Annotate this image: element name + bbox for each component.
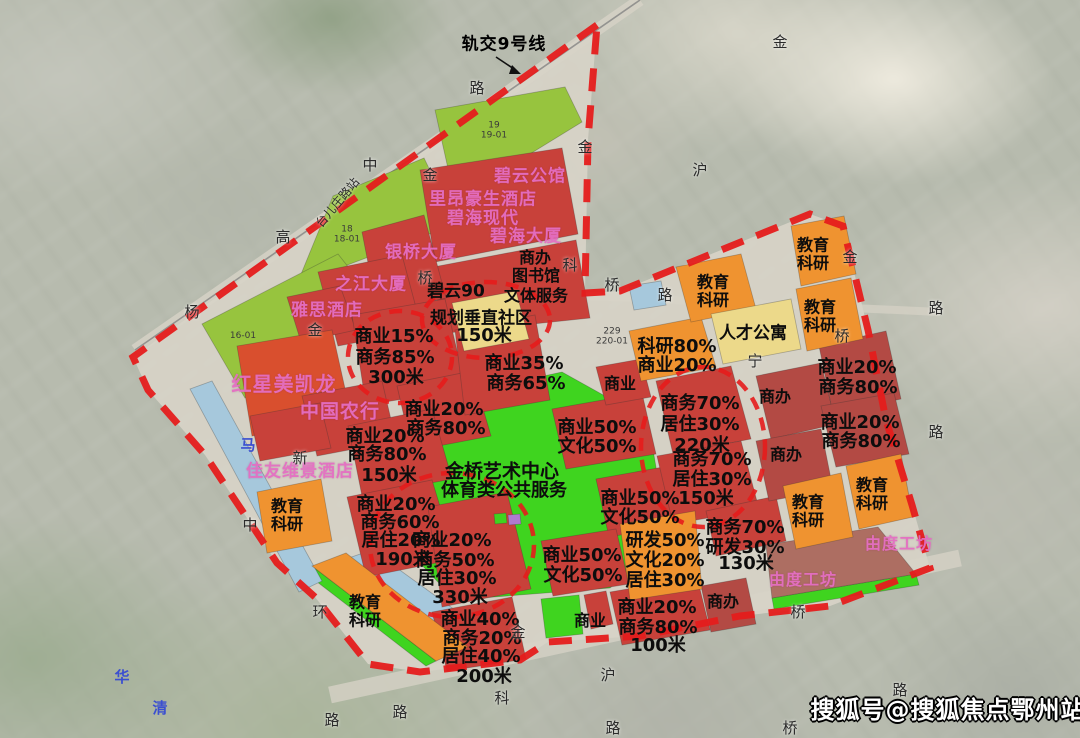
road-name-label: 路	[657, 287, 672, 304]
zoning-label: 商务70%	[672, 450, 751, 470]
road-name-label: 华	[114, 669, 129, 686]
parcel-code-label: 18 18-01	[334, 225, 360, 246]
zoning-label: 居住40%	[441, 647, 520, 667]
zoning-label: 文化50%	[600, 508, 679, 528]
zoning-label: 规划垂直社区	[430, 310, 532, 329]
zoning-label: 商业	[604, 375, 636, 393]
zoning-label: 文化20%	[625, 551, 704, 571]
zoning-label: 商务80%	[818, 378, 897, 398]
road-name-label: 路	[892, 682, 907, 699]
road-name-label: 台儿庄路站	[314, 176, 363, 230]
road-name-label: 高	[275, 229, 290, 246]
zoning-label: 商办	[519, 249, 551, 267]
zoning-label: 商办	[759, 388, 791, 406]
zoning-label: 商务70%	[705, 518, 784, 538]
road-name-label: 桥	[834, 328, 849, 345]
road-name-label: 杨	[184, 304, 199, 321]
zoning-label: 人才公寓	[719, 325, 787, 344]
road-name-label: 科	[494, 690, 509, 707]
zoning-label: 教育 科研	[856, 476, 888, 511]
zoning-label: 图书馆	[512, 267, 560, 285]
zoning-label: 商务80%	[821, 432, 900, 452]
road-name-label: 宁	[747, 353, 762, 370]
parcel-code-label: 16-01	[230, 331, 256, 341]
map-labels-layer: 轨交9号线碧云公馆里昂豪生酒店碧海现代碧海大厦银桥大厦之江大厦雅思酒店红星美凯龙…	[0, 0, 1080, 738]
road-name-label: 金	[772, 34, 787, 51]
watermark: 搜狐号@搜狐焦点鄂州站	[811, 697, 1080, 723]
road-name-label: 桥	[417, 270, 432, 287]
zoning-label: 文体服务	[504, 287, 568, 305]
zoning-label: 商办	[770, 446, 802, 464]
rail-line-label: 轨交9号线	[462, 36, 547, 55]
zoning-label: 文化50%	[557, 437, 636, 457]
zoning-label: 商务20%	[442, 629, 521, 649]
building-name-label: 由度工坊	[865, 535, 933, 553]
building-name-label: 银桥大厦	[385, 244, 457, 263]
zoning-label: 商业50%	[542, 546, 621, 566]
building-name-label: 红星美凯龙	[232, 373, 337, 395]
zoning-label: 商务60%	[360, 513, 439, 533]
road-name-label: 金	[422, 167, 437, 184]
zoning-label: 居住20%	[361, 531, 440, 551]
zoning-label: 商业20%	[617, 598, 696, 618]
zoning-label: 居住30%	[672, 470, 751, 490]
road-name-label: 金	[510, 624, 525, 641]
road-name-label: 桥	[604, 277, 619, 294]
road-name-label: 路	[324, 712, 339, 729]
road-name-label: 沪	[600, 667, 615, 684]
building-name-label: 碧海大厦	[490, 228, 562, 247]
zoning-label: 商业50%	[557, 418, 636, 438]
zoning-label: 教育 科研	[349, 593, 381, 628]
zoning-label: 220米	[674, 436, 730, 456]
road-name-label: 中	[362, 157, 377, 174]
road-name-label: 桥	[790, 604, 805, 621]
road-name-label: 桥	[782, 720, 797, 737]
road-name-label: 马	[240, 437, 255, 454]
zoning-label: 330米	[432, 588, 488, 608]
road-name-label: 路	[928, 424, 943, 441]
zoning-label: 商办	[707, 593, 739, 611]
zoning-label: 教育 科研	[797, 236, 829, 271]
zoning-label: 科研80%	[637, 337, 716, 357]
zoning-label: 商业20%	[345, 427, 424, 447]
road-name-label: 科	[562, 257, 577, 274]
parcel-code-label: 19 19-01	[481, 121, 507, 142]
zoning-label: 商业20%	[404, 400, 483, 420]
building-name-label: 里昂豪生酒店	[429, 191, 537, 210]
building-name-label: 碧海现代	[447, 210, 519, 229]
zoning-label: 130米	[718, 554, 774, 574]
zoning-label: 150米	[678, 489, 734, 509]
zoning-label: 商务65%	[486, 374, 565, 394]
zoning-label: 商业20%	[637, 356, 716, 376]
zoning-label: 300米	[368, 368, 424, 388]
zoning-label: 研发50%	[625, 531, 704, 551]
zoning-label: 商业15%	[354, 327, 433, 347]
zoning-label: 190米	[375, 550, 431, 570]
zoning-label: 体育类公共服务	[441, 481, 567, 501]
road-name-label: 中	[242, 517, 257, 534]
road-name-label: 环	[312, 604, 327, 621]
zoning-label: 商务70%	[660, 394, 739, 414]
road-name-label: 沪	[692, 162, 707, 179]
zoning-label: 商业20%	[820, 413, 899, 433]
zoning-label: 商业40%	[440, 610, 519, 630]
zoning-label: 教育 科研	[697, 273, 729, 308]
zoning-label: 商务80%	[406, 419, 485, 439]
parcel-code-label: 229 220-01	[596, 327, 628, 348]
zoning-label: 商业	[574, 612, 606, 630]
zoning-label: 商业50%	[600, 489, 679, 509]
road-name-label: 路	[469, 80, 484, 97]
zoning-label: 商业35%	[484, 354, 563, 374]
zoning-label: 商业20%	[356, 495, 435, 515]
road-name-label: 金	[307, 322, 322, 339]
zoning-label: 商业20%	[412, 531, 491, 551]
zoning-label: 150米	[456, 326, 512, 346]
zoning-label: 100米	[630, 636, 686, 656]
road-name-label: 路	[392, 704, 407, 721]
zoning-label: 商务85%	[355, 348, 434, 368]
road-name-label: 路	[605, 720, 620, 737]
zoning-label: 碧云90	[427, 283, 485, 302]
planning-map-screenshot: 轨交9号线碧云公馆里昂豪生酒店碧海现代碧海大厦银桥大厦之江大厦雅思酒店红星美凯龙…	[0, 0, 1080, 738]
zoning-label: 教育 科研	[804, 298, 836, 333]
zoning-label: 200米	[456, 667, 512, 687]
building-name-label: 佳友维景酒店	[246, 463, 354, 482]
zoning-label: 居住30%	[660, 415, 739, 435]
road-name-label: 清	[152, 700, 167, 717]
zoning-label: 文化50%	[543, 566, 622, 586]
zoning-label: 商务50%	[415, 551, 494, 571]
zoning-label: 金桥艺术中心	[445, 462, 559, 483]
zoning-label: 研发30%	[705, 538, 784, 558]
zoning-label: 教育 科研	[792, 493, 824, 528]
zoning-label: 商业20%	[817, 358, 896, 378]
building-name-label: 由度工坊	[769, 571, 837, 589]
building-name-label: 之江大厦	[335, 276, 407, 295]
zoning-label: 居住30%	[417, 569, 496, 589]
zoning-label: 商务80%	[347, 445, 426, 465]
road-name-label: 新	[292, 450, 307, 467]
building-name-label: 碧云公馆	[494, 168, 566, 187]
building-name-label: 雅思酒店	[291, 302, 363, 321]
zoning-label: 教育 科研	[271, 497, 303, 532]
zoning-label: 150米	[361, 466, 417, 486]
zoning-label: 居住30%	[625, 571, 704, 591]
zoning-label: 商务80%	[618, 618, 697, 638]
road-name-label: 金	[842, 249, 857, 266]
building-name-label: 中国农行	[300, 402, 380, 423]
road-name-label: 路	[928, 300, 943, 317]
road-name-label: 金	[577, 139, 592, 156]
